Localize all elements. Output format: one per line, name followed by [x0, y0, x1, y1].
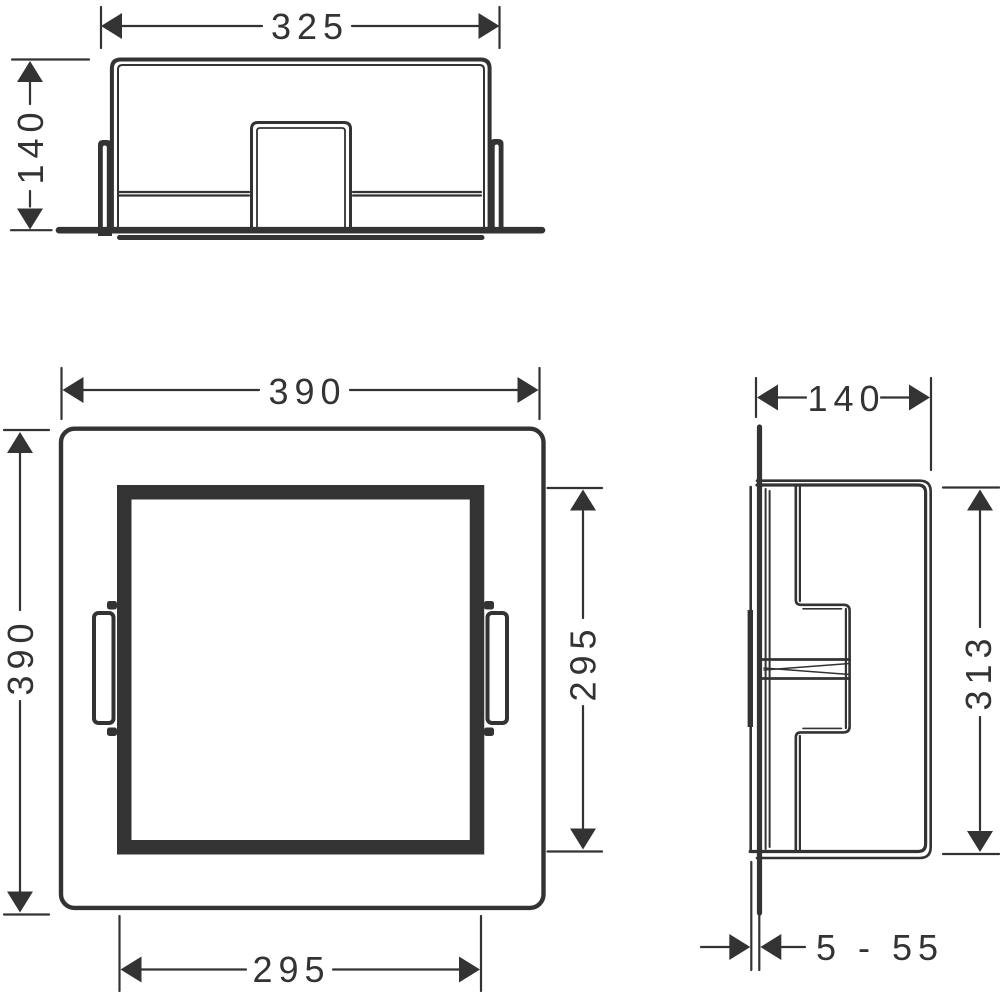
svg-text:390: 390	[268, 371, 346, 412]
svg-text:313: 313	[958, 632, 999, 710]
svg-text:295: 295	[252, 949, 330, 990]
svg-text:390: 390	[0, 617, 41, 695]
svg-text:140: 140	[10, 106, 51, 184]
svg-text:140: 140	[807, 378, 885, 419]
svg-text:325: 325	[271, 6, 349, 47]
svg-text:5 - 55: 5 - 55	[816, 927, 944, 968]
svg-text:295: 295	[563, 623, 604, 701]
